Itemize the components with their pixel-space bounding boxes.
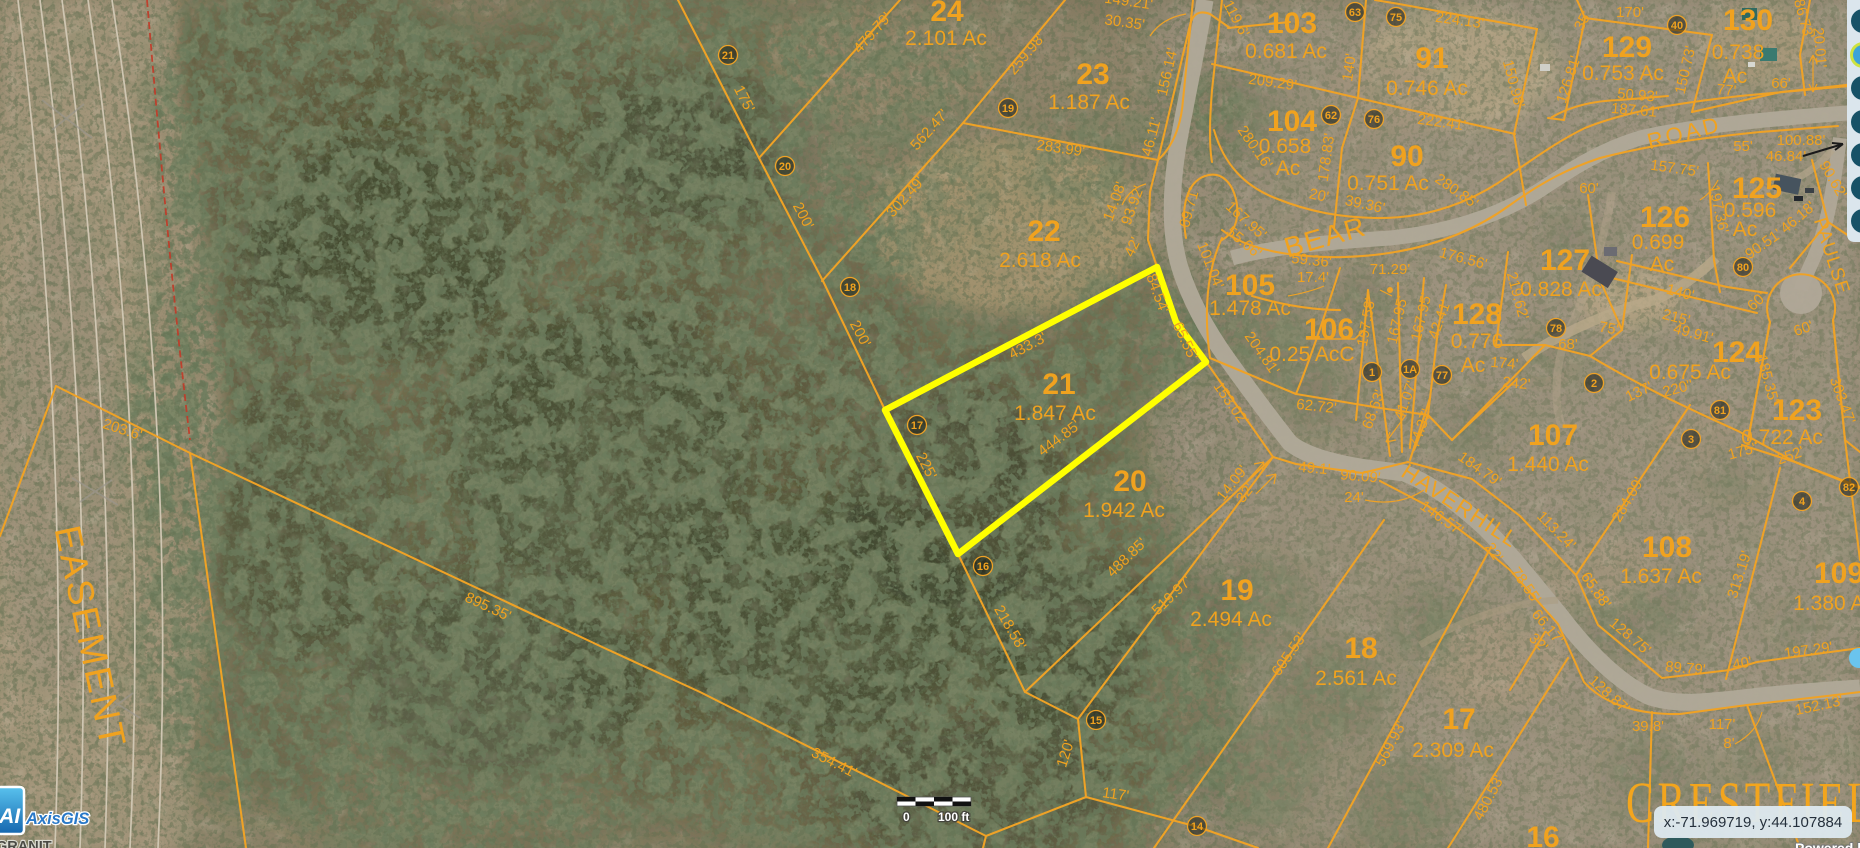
- svg-text:1.440 Ac: 1.440 Ac: [1507, 453, 1589, 476]
- svg-text:76: 76: [1368, 114, 1380, 126]
- svg-text:75: 75: [1390, 12, 1402, 24]
- svg-text:24: 24: [930, 0, 964, 28]
- svg-text:0: 0: [903, 810, 910, 824]
- svg-text:x:-71.969719, y:44.107884: x:-71.969719, y:44.107884: [1664, 814, 1842, 831]
- svg-text:0.681 Ac: 0.681 Ac: [1245, 40, 1327, 63]
- svg-text:0.751 Ac: 0.751 Ac: [1347, 172, 1429, 195]
- svg-text:68': 68': [1558, 336, 1578, 353]
- svg-text:1.187 Ac: 1.187 Ac: [1048, 91, 1130, 114]
- svg-text:23: 23: [1076, 58, 1109, 91]
- svg-text:63: 63: [1349, 7, 1361, 19]
- svg-text:1A: 1A: [1403, 364, 1417, 376]
- svg-text:0.25 AcC: 0.25 AcC: [1269, 343, 1354, 366]
- svg-text:4: 4: [1799, 496, 1806, 508]
- svg-text:100.88': 100.88': [1777, 132, 1826, 149]
- svg-text:Ac: Ac: [1650, 253, 1675, 276]
- svg-text:Powered by: Powered by: [1795, 840, 1860, 848]
- svg-text:100 ft: 100 ft: [938, 810, 969, 824]
- svg-text:62: 62: [1325, 110, 1337, 122]
- svg-text:2.309 Ac: 2.309 Ac: [1412, 739, 1494, 762]
- svg-text:55': 55': [1733, 138, 1753, 155]
- svg-text:22: 22: [1027, 215, 1060, 248]
- svg-text:130: 130: [1723, 4, 1773, 37]
- svg-text:2.494 Ac: 2.494 Ac: [1190, 608, 1272, 631]
- svg-text:49.1': 49.1': [1298, 459, 1332, 479]
- svg-text:123: 123: [1772, 394, 1822, 427]
- svg-text:2.101 Ac: 2.101 Ac: [905, 27, 987, 50]
- svg-text:80: 80: [1737, 262, 1749, 274]
- svg-text:46.84': 46.84': [1766, 148, 1807, 165]
- svg-text:Ac: Ac: [1733, 218, 1758, 241]
- svg-text:108: 108: [1642, 531, 1692, 564]
- svg-text:0.753 Ac: 0.753 Ac: [1582, 62, 1664, 85]
- svg-text:75': 75': [1598, 318, 1620, 338]
- svg-text:0.699: 0.699: [1632, 231, 1685, 254]
- svg-text:90: 90: [1390, 140, 1423, 173]
- svg-text:16: 16: [1526, 821, 1559, 848]
- svg-text:40': 40': [1731, 653, 1753, 673]
- svg-text:242': 242': [1502, 374, 1531, 393]
- svg-text:1.380 Ac: 1.380 Ac: [1793, 592, 1860, 615]
- svg-text:20: 20: [1113, 465, 1146, 498]
- svg-text:1: 1: [1369, 367, 1375, 379]
- svg-text:128: 128: [1452, 298, 1502, 331]
- svg-text:17: 17: [1442, 703, 1475, 736]
- svg-text:174': 174': [1490, 354, 1519, 373]
- svg-text:Ac: Ac: [1276, 157, 1301, 180]
- svg-text:78: 78: [1550, 323, 1562, 335]
- svg-text:126: 126: [1640, 201, 1690, 234]
- svg-text:91: 91: [1415, 42, 1448, 75]
- svg-text:0.658: 0.658: [1259, 135, 1312, 158]
- svg-text:0.746 Ac: 0.746 Ac: [1386, 77, 1468, 100]
- svg-text:16: 16: [977, 561, 989, 573]
- svg-text:18: 18: [844, 282, 856, 294]
- svg-text:1.637 Ac: 1.637 Ac: [1620, 565, 1702, 588]
- svg-text:21: 21: [1042, 368, 1075, 401]
- svg-text:0.738: 0.738: [1712, 41, 1765, 64]
- svg-text:0.722 Ac: 0.722 Ac: [1741, 426, 1823, 449]
- svg-text:109: 109: [1814, 557, 1860, 590]
- svg-text:117': 117': [1709, 716, 1736, 733]
- svg-text:CAI: CAI: [0, 805, 21, 828]
- svg-text:107: 107: [1528, 419, 1578, 452]
- svg-text:89.79': 89.79': [1665, 658, 1707, 678]
- svg-text:1.847 Ac: 1.847 Ac: [1014, 402, 1096, 425]
- svg-text:103: 103: [1267, 7, 1317, 40]
- svg-text:104: 104: [1267, 105, 1317, 138]
- svg-text:77: 77: [1436, 370, 1448, 382]
- svg-text:90.09': 90.09': [1340, 466, 1382, 486]
- svg-text:40: 40: [1671, 20, 1683, 32]
- svg-text:3: 3: [1688, 434, 1694, 446]
- svg-text:24': 24': [1344, 489, 1364, 506]
- svg-text:170': 170': [1616, 4, 1644, 21]
- svg-text:1.942 Ac: 1.942 Ac: [1083, 499, 1165, 522]
- svg-text:0.776: 0.776: [1451, 330, 1504, 353]
- svg-text:17: 17: [911, 420, 923, 432]
- svg-text:106: 106: [1304, 313, 1354, 346]
- svg-text:19: 19: [1220, 574, 1253, 607]
- svg-text:Ac: Ac: [1461, 354, 1486, 377]
- svg-text:Ac: Ac: [1723, 65, 1748, 88]
- svg-text:60': 60': [1579, 180, 1599, 197]
- svg-text:15: 15: [1090, 715, 1102, 727]
- svg-text:2.561 Ac: 2.561 Ac: [1315, 667, 1397, 690]
- svg-text:129: 129: [1602, 31, 1652, 64]
- svg-text:39.8': 39.8': [1632, 718, 1664, 735]
- svg-text:1.478 Ac: 1.478 Ac: [1209, 297, 1291, 320]
- svg-text:2.618 Ac: 2.618 Ac: [999, 249, 1081, 272]
- svg-text:66': 66': [1771, 75, 1791, 92]
- svg-text:GRANIT: GRANIT: [0, 839, 52, 848]
- svg-text:20: 20: [779, 161, 791, 173]
- svg-text:71.29': 71.29': [1370, 261, 1411, 278]
- svg-text:0.828 Ac: 0.828 Ac: [1520, 278, 1602, 301]
- svg-text:127: 127: [1540, 244, 1590, 277]
- svg-text:8': 8': [1723, 735, 1734, 752]
- svg-text:18: 18: [1344, 632, 1377, 665]
- svg-text:17.4': 17.4': [1297, 269, 1329, 286]
- svg-text:2: 2: [1591, 378, 1597, 390]
- svg-text:82: 82: [1843, 482, 1855, 494]
- svg-text:14: 14: [1191, 821, 1204, 833]
- svg-text:81: 81: [1714, 405, 1726, 417]
- svg-text:21: 21: [722, 50, 734, 62]
- svg-text:0.675 Ac: 0.675 Ac: [1649, 361, 1731, 384]
- svg-text:AxisGIS: AxisGIS: [25, 810, 89, 828]
- svg-text:19: 19: [1002, 103, 1014, 115]
